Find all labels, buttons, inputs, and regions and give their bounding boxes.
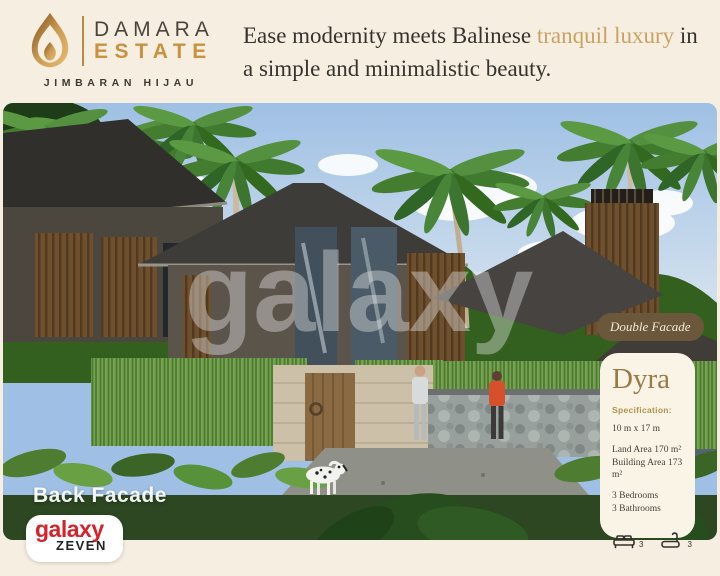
brochure-page: DAMARA ESTATE JIMBARAN HIJAU Ease modern… <box>0 0 720 576</box>
spec-panel: Dyra Specification: 10 m x 17 m Land Are… <box>600 353 695 538</box>
logo-divider <box>82 16 84 66</box>
spec-section-label: Specification: <box>612 405 687 415</box>
unit-name: Dyra <box>612 365 687 394</box>
spec-rooms: 3 Bedrooms 3 Bathrooms <box>612 490 687 516</box>
amenity-icons: 3 3 <box>612 531 687 551</box>
spec-bathrooms: 3 Bathrooms <box>612 503 687 516</box>
bath-icon <box>660 531 684 551</box>
developer-logo: galaxy ZEVEN <box>26 515 123 562</box>
brand-name-damara: DAMARA <box>94 19 214 41</box>
brand-name-estate: ESTATE <box>94 41 214 63</box>
header: DAMARA ESTATE JIMBARAN HIJAU Ease modern… <box>0 0 720 103</box>
spec-bedrooms: 3 Bedrooms <box>612 490 687 503</box>
bathroom-icon-group: 3 <box>660 531 691 551</box>
bed-count: 3 <box>639 541 643 551</box>
bedroom-icon-group: 3 <box>612 531 643 551</box>
spec-building-area: Building Area 173 m² <box>612 457 687 483</box>
headline-part1: Ease modernity meets Balinese <box>243 23 537 48</box>
bed-icon <box>612 531 636 551</box>
facade-type-badge: Double Facade <box>597 313 704 341</box>
photo-caption: Back Facade <box>33 484 167 508</box>
watermark-text: galaxy <box>185 230 534 355</box>
flame-icon <box>28 12 72 70</box>
brand-logo: DAMARA ESTATE JIMBARAN HIJAU <box>28 12 214 89</box>
zeven-wordmark: ZEVEN <box>56 539 123 552</box>
bath-count: 3 <box>687 541 691 551</box>
spec-land-area: Land Area 170 m² <box>612 444 687 457</box>
headline-accent: tranquil luxury <box>537 23 674 48</box>
headline: Ease modernity meets Balinese tranquil l… <box>243 20 705 85</box>
spec-dimensions: 10 m x 17 m <box>612 423 687 436</box>
brand-subtitle: JIMBARAN HIJAU <box>44 77 198 89</box>
spec-areas: Land Area 170 m² Building Area 173 m² <box>612 444 687 482</box>
